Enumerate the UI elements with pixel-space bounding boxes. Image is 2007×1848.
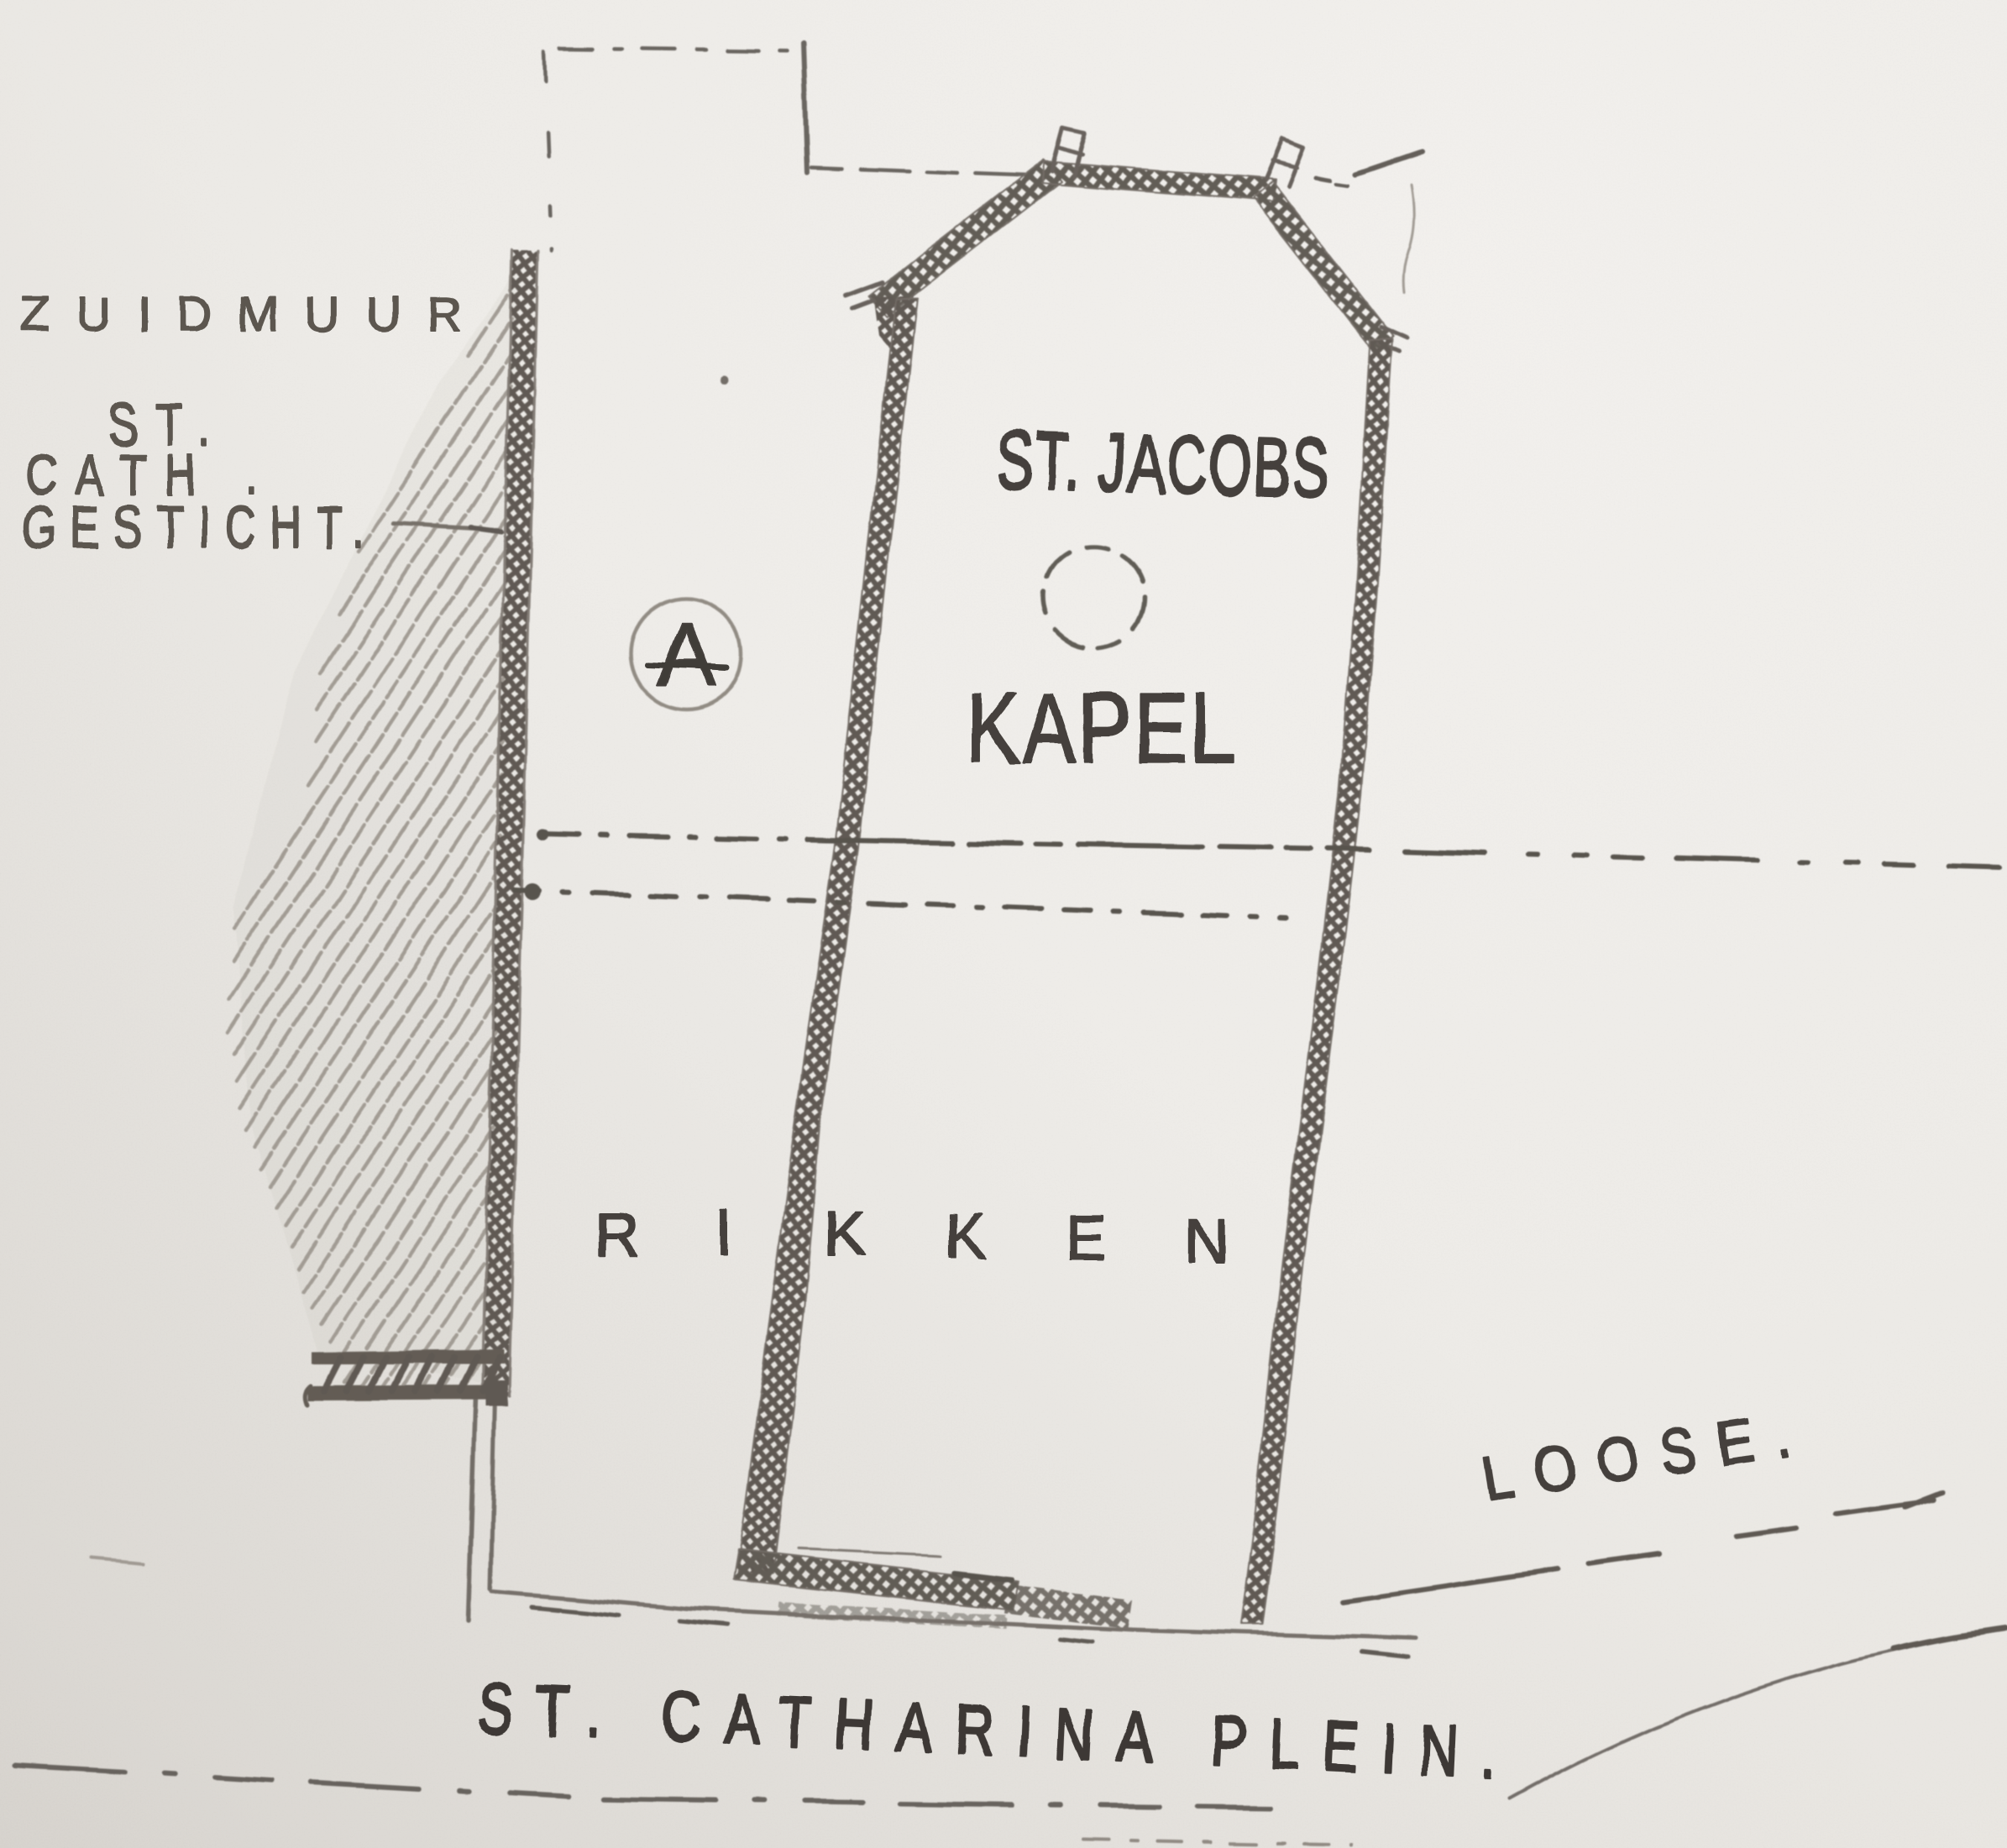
svg-text:ZUIDMUUR: ZUIDMUUR	[20, 287, 488, 342]
svg-text:I: I	[715, 1197, 733, 1267]
svg-text:N: N	[1184, 1207, 1229, 1276]
svg-text:GESTICHT.: GESTICHT.	[22, 495, 379, 560]
svg-text:A: A	[657, 606, 715, 704]
svg-text:K: K	[945, 1201, 986, 1271]
svg-text:ST. JACOBS: ST. JACOBS	[995, 414, 1331, 516]
svg-text:K: K	[824, 1199, 865, 1269]
svg-text:KAPEL: KAPEL	[966, 673, 1236, 783]
svg-text:R: R	[595, 1200, 639, 1270]
svg-text:E: E	[1065, 1203, 1106, 1273]
